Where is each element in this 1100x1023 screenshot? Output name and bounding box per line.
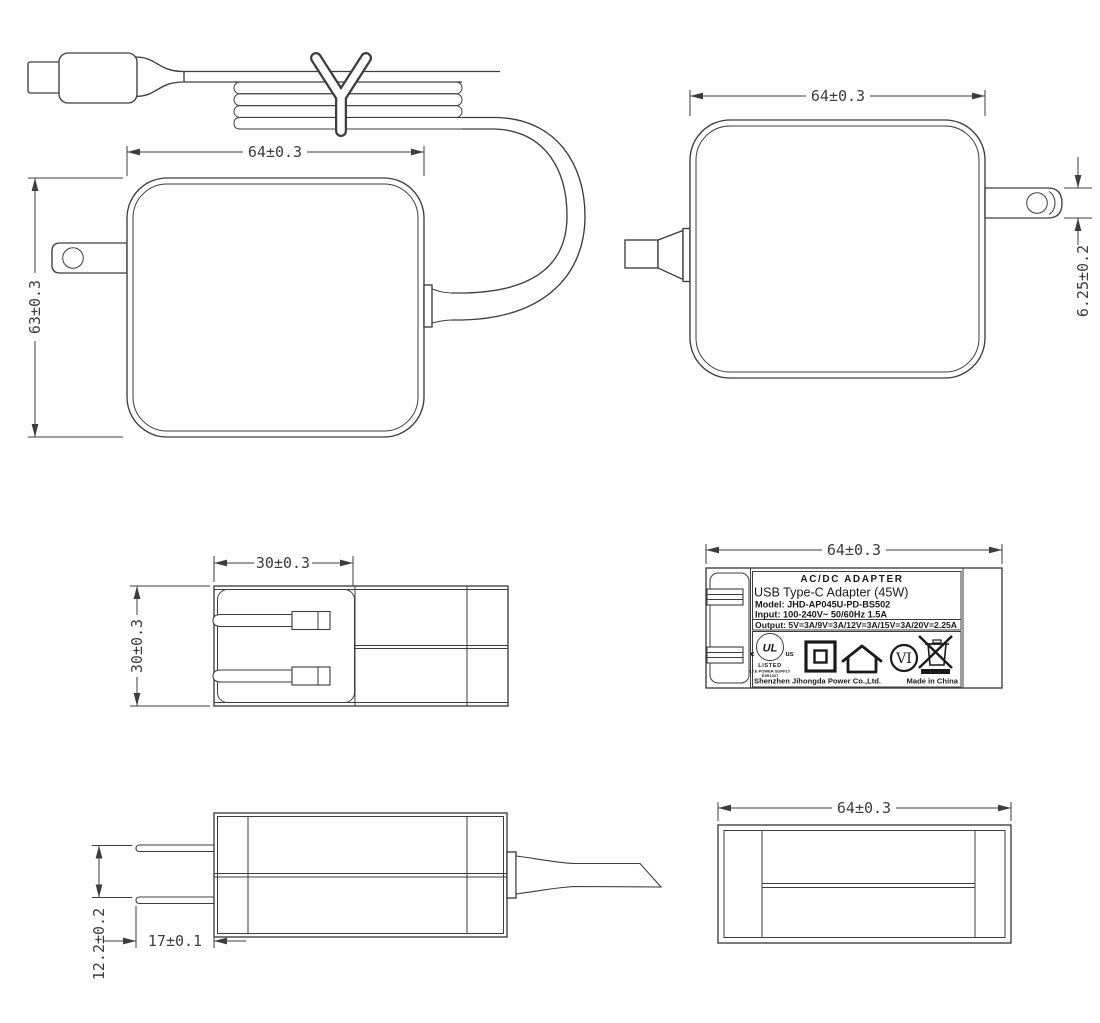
usbc-plug-tip <box>28 62 60 93</box>
cable-tie-body <box>316 58 366 131</box>
ac-prong <box>52 243 127 273</box>
dimension-fold-width-label: 30±0.3 <box>256 554 310 572</box>
dimension-body-thickness-label: 30±0.3 <box>128 619 146 673</box>
arrowhead <box>972 93 985 100</box>
dimension-front-height-label: 63±0.3 <box>26 280 44 334</box>
body-outline <box>214 813 507 937</box>
arrowhead <box>718 805 731 812</box>
cable-exit <box>507 852 661 898</box>
label-input: Input: 100-240V~ 50/60Hz 1.5A <box>755 610 887 620</box>
strain-relief-taper-bottom <box>432 320 452 323</box>
drawing-canvas: 64±0.3 63±0.3 <box>0 0 1100 1023</box>
prong-edge <box>707 647 743 663</box>
label-output: Output: 5V=3A/9V=3A/12V=3A/15V=3A/20V=2.… <box>755 621 957 630</box>
adapter-body-outline <box>690 120 985 378</box>
strain-relief-flange <box>507 852 516 898</box>
arrowhead <box>706 547 719 554</box>
label-company: Shenzhen Jihongda Power Co.,Ltd. <box>754 677 881 686</box>
dimension-rear-width-label: 64±0.3 <box>811 87 865 105</box>
arrowhead <box>96 846 103 859</box>
connector-neck <box>135 57 184 97</box>
arrowhead <box>127 149 140 156</box>
label-view: AC/DC ADAPTER USB Type-C Adapter (45W) M… <box>706 541 1002 688</box>
adapter-body-outline <box>127 178 424 437</box>
ul-letters: UL <box>763 643 778 655</box>
strain-relief-flange <box>683 229 690 282</box>
arrowhead <box>340 560 353 567</box>
arrowhead <box>998 805 1011 812</box>
connector-body <box>59 53 137 103</box>
strain-relief-taper-top <box>432 289 452 293</box>
ul-us: us <box>786 651 794 658</box>
dimension-prong-thickness-label: 6.25±0.2 <box>1074 245 1092 317</box>
prong-block <box>292 667 330 685</box>
arrowhead <box>411 149 424 156</box>
prong-edge <box>707 589 743 605</box>
coil-loop <box>234 106 462 118</box>
arrowhead <box>123 938 136 945</box>
strain-relief-cone <box>658 231 683 280</box>
arrowhead <box>32 178 39 191</box>
ac-prong <box>136 845 214 904</box>
arrowhead <box>989 547 1002 554</box>
arrowhead <box>1075 175 1082 188</box>
dimension-prong-thickness: 6.25±0.2 <box>1064 157 1092 317</box>
front-view-with-cable: 64±0.3 63±0.3 <box>26 53 585 437</box>
dimension-front-width: 64±0.3 <box>127 143 424 176</box>
prong-edge-section <box>707 589 743 605</box>
cable-tie <box>316 58 366 131</box>
bottom-view: 64±0.3 <box>718 799 1011 943</box>
folded-prong <box>213 612 330 630</box>
dimension-prong-length-label: 17±0.1 <box>148 932 202 950</box>
arrowhead <box>134 693 141 706</box>
label-product: USB Type-C Adapter (45W) <box>754 586 908 600</box>
dimension-rear-width: 64±0.3 <box>690 87 985 116</box>
folded-prong <box>213 667 330 685</box>
arrowhead <box>96 885 103 898</box>
prong-edge-section <box>707 647 743 663</box>
dimension-prong-spacing: 12.2±0.2 <box>90 846 132 981</box>
prong-bar <box>213 670 292 682</box>
arrowhead <box>134 586 141 599</box>
dimension-bottom-width: 64±0.3 <box>718 799 1011 821</box>
efficiency-level-numeral: VI <box>895 651 912 667</box>
arrowhead <box>214 560 227 567</box>
cable-loop-outer <box>452 118 585 321</box>
coil-loop-open <box>234 118 462 130</box>
dimension-label-width: 64±0.3 <box>706 541 1002 564</box>
usbc-connector <box>28 53 184 103</box>
prong-bar <box>213 615 292 627</box>
arrowhead <box>214 938 227 945</box>
arrowhead <box>690 93 703 100</box>
dimension-prong-spacing-label: 12.2±0.2 <box>90 908 108 980</box>
label-model: Model: JHD-AP045U-PD-BS502 <box>755 600 890 610</box>
prong-block <box>292 612 330 630</box>
prong-blade <box>136 845 214 852</box>
cable-loop-inner <box>452 129 567 293</box>
dimension-front-width-label: 64±0.3 <box>248 143 302 161</box>
ul-c: c <box>751 651 755 658</box>
arrowhead <box>32 424 39 437</box>
adapter-dimensional-drawing: 64±0.3 63±0.3 <box>0 0 1100 1023</box>
rear-view: 64±0.3 6.25±0.2 <box>625 87 1092 378</box>
strain-relief-flange <box>424 285 432 327</box>
dimension-body-thickness: 30±0.3 <box>128 586 210 706</box>
cable-stub <box>625 240 658 268</box>
dimension-front-height: 63±0.3 <box>26 178 123 437</box>
dimension-fold-width: 30±0.3 <box>214 554 353 586</box>
arrowhead <box>1075 218 1082 231</box>
dimension-bottom-width-label: 64±0.3 <box>837 799 891 817</box>
label-heading: AC/DC ADAPTER <box>800 574 903 585</box>
dimension-label-width-label: 64±0.3 <box>827 541 881 559</box>
label-origin: Made in China <box>907 677 959 686</box>
top-view: 30±0.3 30±0.3 <box>128 554 508 706</box>
prong-blade <box>136 897 214 904</box>
cable-with-cut-end <box>516 856 661 894</box>
side-view: 12.2±0.2 17±0.1 <box>90 813 661 980</box>
